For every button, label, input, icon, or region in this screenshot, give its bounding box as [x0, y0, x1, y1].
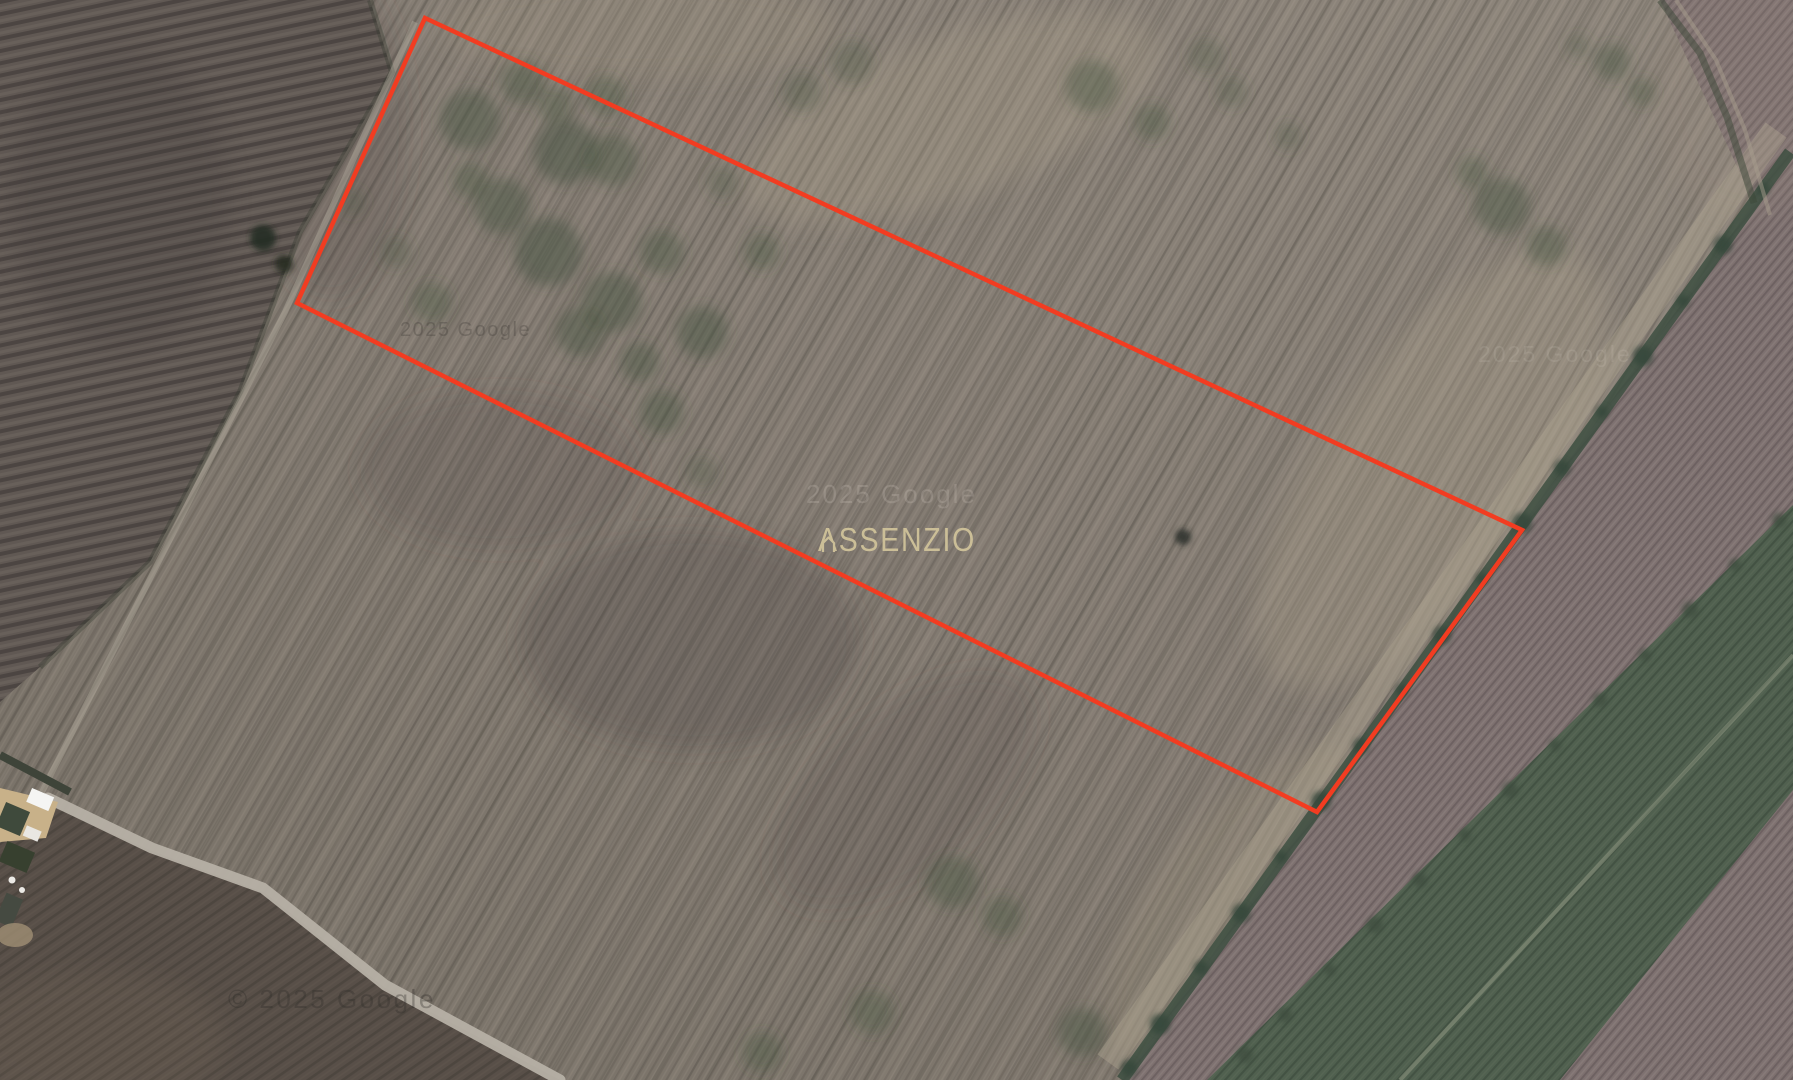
google-copyright: © 2025 Google — [228, 984, 436, 1014]
assenzio-logo: ASSENZIO — [818, 521, 976, 558]
google-watermark-right: 2025 Google — [1478, 341, 1632, 367]
google-watermark-upper-left: 2025 Google — [400, 319, 531, 341]
satellite-map-canvas[interactable]: 2025 Google 2025 Google 2025 Google © 20… — [0, 0, 1793, 1080]
aerial-map-view: 2025 Google 2025 Google 2025 Google © 20… — [0, 0, 1793, 1080]
google-watermark-center: 2025 Google — [806, 479, 977, 509]
assenzio-logo-text: ASSENZIO — [818, 521, 976, 558]
